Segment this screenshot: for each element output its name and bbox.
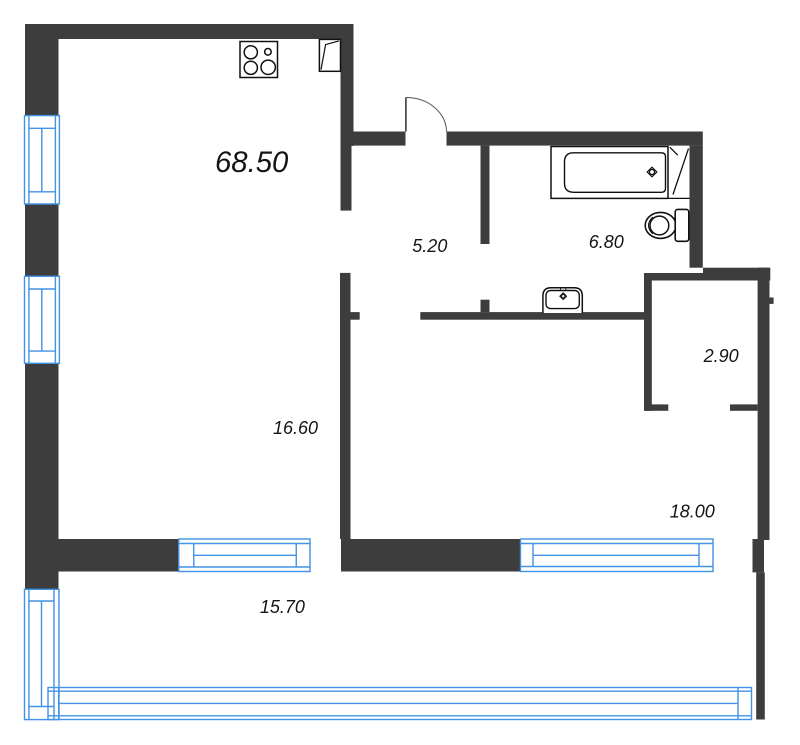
svg-text:15.70: 15.70 (260, 597, 305, 617)
svg-text:6.80: 6.80 (589, 232, 624, 252)
svg-text:2.90: 2.90 (703, 346, 739, 366)
svg-text:16.60: 16.60 (273, 418, 318, 438)
svg-text:5.20: 5.20 (412, 236, 447, 256)
svg-text:68.50: 68.50 (215, 146, 289, 179)
svg-text:18.00: 18.00 (670, 502, 715, 522)
